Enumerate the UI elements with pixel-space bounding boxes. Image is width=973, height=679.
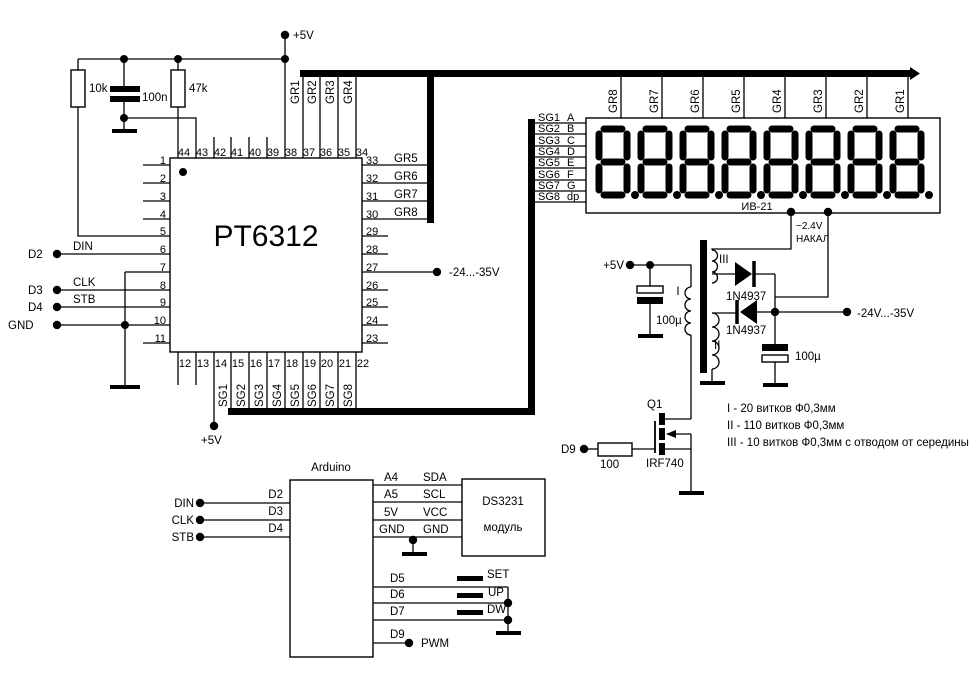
resistor-10k (71, 70, 85, 107)
pin-number: 17 (268, 358, 280, 370)
neg-supply-terminal (433, 268, 441, 276)
digit-decimal-point (925, 191, 933, 199)
net-label: +5V (201, 435, 222, 447)
grid-label: GR7 (394, 189, 418, 201)
junction-dot (504, 599, 512, 607)
diode-label: 1N4937 (726, 325, 766, 337)
segment-label: SG3 (254, 384, 266, 407)
pin-number: 30 (366, 209, 378, 221)
clk-terminal (196, 516, 204, 524)
display-name: ИВ-21 (741, 201, 772, 213)
capacitor-100n-plate (110, 96, 140, 102)
segment-pin-label: SG2 (538, 123, 560, 135)
gate-net-terminal (580, 445, 588, 453)
grid-label: GR2 (307, 80, 319, 104)
filament-name-label: НАКАЛ (796, 234, 829, 245)
net-label: PWM (421, 638, 449, 650)
grid-label: GR4 (772, 89, 784, 113)
resistor-100-label: 100 (600, 459, 619, 471)
capacitor-100n-plate (110, 86, 140, 92)
resistor-47k-label: 47k (189, 83, 208, 95)
segment-name-label: E (567, 157, 574, 169)
pin-label: 5V (384, 507, 398, 519)
mosfet-channel-bar (659, 413, 665, 425)
pin-number: 9 (160, 297, 166, 309)
winding-filament-label: III (719, 254, 729, 266)
grid-label: GR5 (394, 153, 418, 165)
module-name: DS3231 (482, 496, 524, 508)
button-set (457, 576, 483, 581)
module-type: модуль (484, 522, 523, 534)
button-label: UP (488, 587, 504, 599)
transformer-core (700, 240, 707, 373)
net-label: SDA (423, 472, 447, 484)
winding-primary-label: I (676, 286, 679, 298)
filament-voltage-label: ~2.4V (796, 221, 823, 232)
grid-label: GR1 (895, 89, 907, 113)
net-label: CLK (73, 277, 96, 289)
pwm-terminal (405, 639, 413, 647)
pin-number: 38 (285, 147, 297, 159)
transistor-part-label: IRF740 (646, 458, 684, 470)
pin-number: 13 (197, 358, 209, 370)
pin-number: 29 (366, 226, 378, 238)
segment-label: SG7 (325, 384, 337, 407)
gnd-terminal (53, 321, 61, 329)
segment-label: SG8 (343, 384, 355, 407)
arduino-name: Arduino (311, 462, 351, 474)
capacitor-in-plate (637, 297, 663, 304)
chip-name: PT6312 (213, 220, 318, 253)
button-label: SET (487, 569, 509, 581)
resistor-100 (598, 443, 632, 456)
pin-number: 24 (366, 315, 378, 327)
pin-number: 1 (160, 155, 166, 167)
pin-number: 16 (250, 358, 262, 370)
digit-decimal-point (757, 191, 765, 199)
net-label: D9 (561, 444, 576, 456)
pin-number: 42 (214, 147, 226, 159)
net-label: DIN (73, 241, 93, 253)
pin-number: 27 (366, 262, 378, 274)
pin-label: A4 (384, 472, 399, 484)
pin-number: 20 (321, 358, 333, 370)
net-label: VCC (423, 507, 447, 519)
capacitor-out-plate (762, 344, 788, 351)
digit-decimal-point (715, 191, 723, 199)
pin-number: 8 (160, 280, 166, 292)
plus5v-terminal (281, 31, 289, 39)
grid-label: GR8 (608, 89, 620, 113)
net-label: GND (423, 524, 449, 536)
junction-dot (120, 114, 128, 122)
pin-number: 37 (303, 147, 315, 159)
pin-number: 43 (196, 147, 208, 159)
mosfet-channel-bar (659, 443, 665, 455)
pin-number: 32 (366, 173, 378, 185)
net-label: -24...-35V (449, 267, 500, 279)
net-label: STB (73, 294, 96, 306)
din-terminal (53, 250, 61, 258)
button-up (457, 593, 483, 598)
segment-label: SG2 (236, 384, 248, 407)
digit-decimal-point (673, 191, 681, 199)
circuit-schematic: 10k 100n 47k +5V PT6312 (0, 0, 973, 679)
net-label: D2 (28, 249, 43, 261)
segment-label: SG6 (307, 384, 319, 407)
stb-terminal (196, 533, 204, 541)
pin-label: D7 (390, 606, 405, 618)
pin1-marker (179, 168, 187, 176)
winding-note: III - 10 витков Ф0,3мм с отводом от сере… (727, 437, 969, 449)
pin-number: 18 (286, 358, 298, 370)
pin-number: 11 (155, 333, 166, 345)
pin-number: 26 (366, 280, 378, 292)
pin-number: 21 (339, 358, 351, 370)
pin-number: 14 (215, 358, 227, 370)
pin-number: 2 (160, 173, 166, 185)
pin-label: D2 (268, 489, 283, 501)
button-dw (457, 610, 483, 615)
segment-pin-label: SG5 (538, 157, 560, 169)
neg-output-terminal (843, 308, 851, 316)
pin-number: 33 (366, 155, 378, 167)
pin-number: 25 (366, 297, 378, 309)
junction-dot (174, 55, 182, 63)
pin-number: 22 (357, 358, 369, 370)
segment-name-label: dp (567, 191, 579, 203)
pin-number: 3 (160, 191, 166, 203)
resistor-10k-label: 10k (89, 83, 108, 95)
resistor-47k (171, 70, 185, 107)
junction-dot (121, 321, 129, 329)
net-label: DIN (174, 498, 194, 510)
net-label: D4 (28, 302, 43, 314)
ds3231-module (462, 479, 545, 556)
pin-label: D4 (268, 523, 283, 535)
capacitor-in-plate (637, 286, 663, 293)
pin-number: 28 (366, 244, 378, 256)
net-label: GND (8, 320, 34, 332)
junction-dot (281, 55, 289, 63)
junction-dot (120, 55, 128, 63)
stb-terminal (53, 303, 61, 311)
winding-secondary-label: II (714, 340, 720, 352)
capacitor-100n-label: 100n (142, 92, 168, 104)
pin-label: D6 (390, 589, 405, 601)
capacitor-in-label: 100µ (656, 315, 682, 327)
mosfet-channel-bar (659, 428, 665, 440)
pin-number: 6 (160, 244, 166, 256)
net-label: STB (172, 532, 195, 544)
diode-label: 1N4937 (726, 291, 766, 303)
segment-name-label: B (567, 123, 574, 135)
din-terminal (196, 499, 204, 507)
pin-label: D3 (268, 506, 283, 518)
pin-number: 10 (154, 315, 166, 327)
net-label: +5V (603, 260, 624, 272)
pin-label: GND (379, 524, 405, 536)
segment-label: SG1 (218, 384, 230, 407)
pin-number: 5 (160, 226, 166, 238)
grid-label: GR1 (290, 80, 302, 104)
pin-number: 19 (304, 358, 316, 370)
pin-number: 36 (320, 147, 332, 159)
plus5v-terminal (210, 422, 218, 430)
grid-label: GR3 (813, 89, 825, 113)
capacitor-out-label: 100µ (795, 351, 821, 363)
grid-label: GR3 (325, 80, 337, 104)
grid-label: GR2 (854, 89, 866, 113)
pin-number: 41 (231, 147, 243, 159)
pin-number: 39 (267, 147, 279, 159)
net-label: CLK (172, 515, 195, 527)
grid-label: GR6 (690, 89, 702, 113)
pin-number: 15 (232, 358, 244, 370)
pin-number: 4 (160, 209, 166, 221)
winding-note: II - 110 витков Ф0,3мм (727, 420, 844, 432)
clk-terminal (53, 286, 61, 294)
arduino-body (290, 480, 373, 657)
segment-pin-label: SG8 (538, 191, 560, 203)
pin-number: 44 (178, 147, 190, 159)
digit-decimal-point (799, 191, 807, 199)
schematic-page: 10k 100n 47k +5V PT6312 (0, 0, 973, 679)
plus5v-label: +5V (293, 30, 314, 42)
grid-label: GR7 (649, 89, 661, 113)
pin-number: 23 (366, 333, 378, 345)
digit-decimal-point (631, 191, 639, 199)
segment-label: SG4 (272, 383, 284, 407)
pin-number: 7 (160, 262, 166, 274)
pin-label: D5 (390, 573, 405, 585)
pin-label: D9 (390, 629, 405, 641)
net-label: SCL (423, 489, 446, 501)
button-label: DW (487, 604, 506, 616)
pin-number: 31 (366, 191, 378, 203)
junction-dot (504, 616, 512, 624)
pin-label: A5 (384, 489, 398, 501)
segment-label: SG5 (290, 384, 302, 407)
winding-note: I - 20 витков Ф0,3мм (727, 403, 836, 415)
digit-decimal-point (883, 191, 891, 199)
grid-label: GR6 (394, 171, 418, 183)
chip-body (170, 158, 362, 352)
pin-number: 40 (249, 147, 261, 159)
grid-label: GR5 (731, 89, 743, 113)
net-label: -24V...-35V (857, 308, 914, 320)
grid-label: GR4 (343, 80, 355, 104)
pin-number: 12 (179, 358, 191, 370)
capacitor-out-plate (762, 355, 788, 362)
pin-number: 35 (338, 147, 350, 159)
digit-decimal-point (841, 191, 849, 199)
net-label: D3 (28, 285, 43, 297)
transistor-ref-label: Q1 (647, 399, 662, 411)
grid-label: GR8 (394, 207, 418, 219)
